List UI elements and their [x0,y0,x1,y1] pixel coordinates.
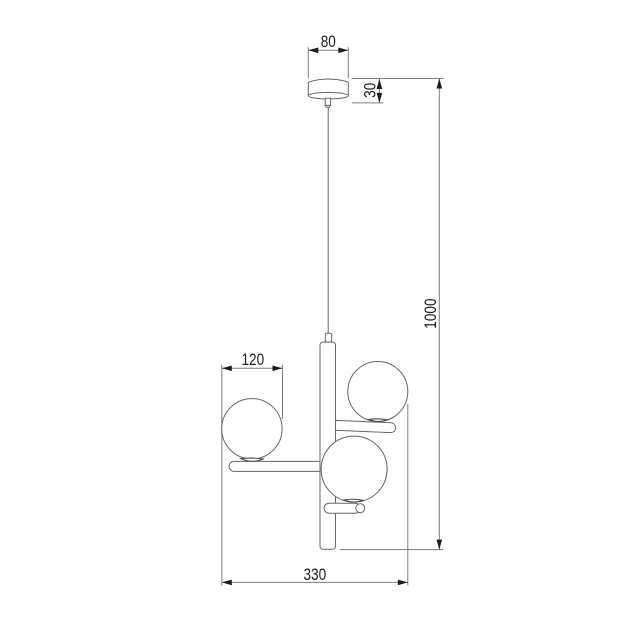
svg-text:80: 80 [321,33,336,52]
svg-text:30: 30 [361,83,380,98]
svg-text:120: 120 [241,351,264,370]
svg-text:330: 330 [303,566,326,585]
svg-text:1000: 1000 [422,298,441,328]
